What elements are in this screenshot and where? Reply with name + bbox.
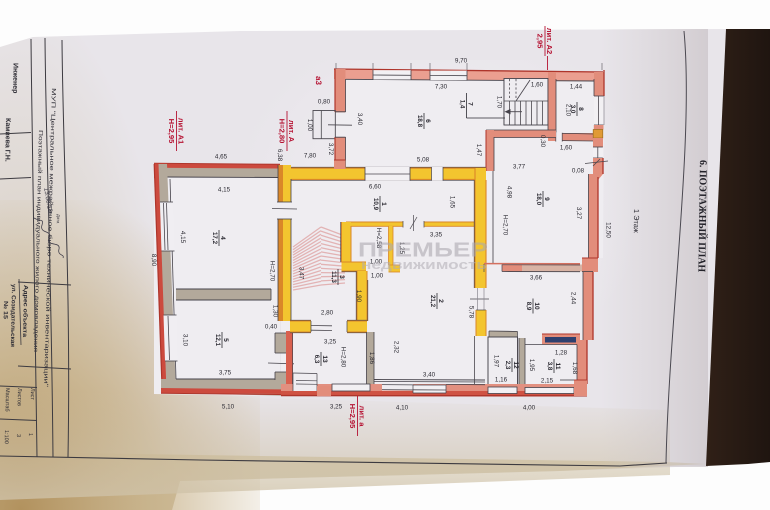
- svg-text:1:100: 1:100: [3, 430, 9, 444]
- svg-text:2,95: 2,95: [536, 34, 545, 50]
- svg-text:3,77: 3,77: [513, 163, 526, 170]
- svg-text:1: 1: [380, 202, 387, 206]
- svg-text:3,66: 3,66: [530, 274, 543, 281]
- svg-text:9: 9: [543, 197, 550, 201]
- svg-text:5,08: 5,08: [417, 156, 430, 163]
- svg-text:2,80: 2,80: [321, 309, 334, 316]
- svg-text:3,10: 3,10: [181, 334, 188, 347]
- svg-text:3,25: 3,25: [324, 338, 337, 345]
- svg-text:1,28: 1,28: [555, 349, 568, 356]
- svg-text:4,98: 4,98: [505, 186, 512, 199]
- svg-text:6,60: 6,60: [369, 183, 382, 190]
- svg-text:№ 15: № 15: [2, 301, 9, 320]
- svg-text:Н=2,80: Н=2,80: [339, 347, 346, 368]
- svg-text:4,65: 4,65: [215, 153, 228, 160]
- svg-text:3,25: 3,25: [330, 403, 343, 410]
- svg-text:а3: а3: [314, 76, 323, 86]
- svg-text:1,86: 1,86: [368, 352, 375, 365]
- svg-text:7,80: 7,80: [304, 152, 317, 159]
- svg-text:2,44: 2,44: [569, 292, 576, 305]
- svg-text:6: 6: [424, 119, 431, 123]
- svg-text:11,3: 11,3: [330, 271, 337, 283]
- svg-text:Камиева Г.Н.: Камиева Г.Н.: [3, 118, 11, 162]
- svg-text:6. ПОЭТАЖНЫЙ ПЛАН: 6. ПОЭТАЖНЫЙ ПЛАН: [695, 160, 709, 272]
- svg-text:2,32: 2,32: [392, 341, 399, 354]
- svg-text:0,80: 0,80: [318, 98, 331, 105]
- svg-text:4,10: 4,10: [396, 404, 409, 411]
- svg-text:0,08: 0,08: [572, 167, 585, 174]
- svg-text:2,3: 2,3: [504, 361, 511, 370]
- svg-text:1,30: 1,30: [271, 305, 278, 318]
- svg-text:21,2: 21,2: [429, 295, 436, 308]
- svg-text:6,38: 6,38: [276, 149, 283, 162]
- svg-text:5: 5: [222, 338, 229, 342]
- svg-text:Адрес объекта: Адрес объекта: [21, 285, 29, 338]
- svg-text:1,68: 1,68: [571, 362, 578, 375]
- svg-text:17,2: 17,2: [211, 232, 218, 245]
- svg-text:1 Этаж: 1 Этаж: [632, 209, 641, 233]
- svg-text:5,10: 5,10: [222, 403, 235, 410]
- svg-text:Н=2,70: Н=2,70: [501, 215, 508, 236]
- svg-text:1,95: 1,95: [528, 359, 535, 372]
- svg-text:Н=2,95: Н=2,95: [348, 404, 357, 429]
- svg-text:8,90: 8,90: [150, 254, 157, 267]
- svg-text:7,30: 7,30: [435, 83, 448, 90]
- svg-text:Листов: Листов: [16, 388, 22, 406]
- svg-text:4,15: 4,15: [179, 231, 186, 244]
- svg-text:9,70: 9,70: [455, 57, 468, 64]
- svg-text:3,47: 3,47: [297, 267, 304, 280]
- svg-text:1,60: 1,60: [531, 81, 544, 88]
- svg-text:12,1: 12,1: [214, 334, 221, 347]
- svg-text:Масштаб: Масштаб: [4, 388, 10, 412]
- svg-text:4: 4: [219, 236, 226, 240]
- svg-text:3: 3: [338, 275, 345, 279]
- svg-text:8: 8: [577, 107, 584, 111]
- svg-text:5,78: 5,78: [467, 306, 474, 319]
- svg-text:2,15: 2,15: [541, 377, 554, 384]
- svg-text:ул. Созидательская: ул. Созидательская: [9, 284, 16, 348]
- svg-text:лит. А1: лит. А1: [177, 118, 186, 145]
- svg-text:3,8: 3,8: [546, 362, 553, 371]
- svg-text:0,40: 0,40: [265, 323, 278, 330]
- svg-text:11: 11: [554, 363, 561, 370]
- svg-text:лит. А2: лит. А2: [545, 28, 554, 54]
- svg-text:Н=2,80: Н=2,80: [278, 119, 287, 144]
- svg-text:лит. а: лит. а: [358, 406, 367, 428]
- svg-text:1,16: 1,16: [495, 376, 508, 383]
- svg-text:Дата: Дата: [56, 214, 61, 224]
- svg-text:10: 10: [533, 302, 540, 310]
- svg-text:0,30: 0,30: [539, 135, 546, 148]
- svg-text:1,00: 1,00: [371, 272, 384, 279]
- svg-text:Лист: Лист: [29, 388, 35, 401]
- svg-text:недвижимость: недвижимость: [361, 257, 487, 272]
- svg-text:3: 3: [15, 434, 21, 437]
- svg-text:1,97: 1,97: [492, 355, 499, 368]
- svg-text:3,75: 3,75: [219, 369, 232, 376]
- svg-text:4,00: 4,00: [523, 404, 536, 411]
- svg-text:8,9: 8,9: [525, 302, 532, 311]
- svg-text:1,4: 1,4: [458, 100, 465, 109]
- svg-text:3,40: 3,40: [423, 371, 436, 378]
- svg-text:1,60: 1,60: [560, 144, 573, 151]
- svg-text:3,0: 3,0: [569, 105, 576, 114]
- svg-text:1,65: 1,65: [448, 196, 455, 209]
- svg-text:18,8: 18,8: [416, 115, 423, 128]
- svg-text:3,40: 3,40: [356, 113, 363, 126]
- svg-text:1,90: 1,90: [355, 290, 362, 303]
- svg-text:10,9: 10,9: [372, 198, 379, 211]
- svg-text:Инженер: Инженер: [11, 63, 18, 93]
- svg-text:1,70: 1,70: [495, 96, 502, 109]
- svg-text:6,3: 6,3: [313, 355, 320, 364]
- svg-text:13: 13: [321, 355, 328, 363]
- svg-text:12: 12: [512, 361, 519, 369]
- svg-text:4,15: 4,15: [218, 186, 231, 193]
- svg-text:3,35: 3,35: [430, 231, 443, 238]
- svg-text:1: 1: [27, 433, 33, 436]
- svg-text:18,0: 18,0: [535, 193, 542, 206]
- svg-text:2: 2: [437, 299, 444, 303]
- svg-text:лит. А: лит. А: [287, 120, 296, 143]
- svg-text:1,00: 1,00: [306, 119, 313, 132]
- svg-text:1,47: 1,47: [475, 144, 482, 157]
- svg-text:Н=2,95: Н=2,95: [167, 119, 176, 144]
- svg-text:3,27: 3,27: [575, 207, 582, 220]
- svg-text:3,72: 3,72: [327, 143, 334, 156]
- svg-text:12,50: 12,50: [604, 222, 611, 238]
- svg-text:Н=2,70: Н=2,70: [268, 261, 275, 282]
- svg-text:7: 7: [466, 102, 473, 106]
- svg-text:1,44: 1,44: [570, 83, 583, 90]
